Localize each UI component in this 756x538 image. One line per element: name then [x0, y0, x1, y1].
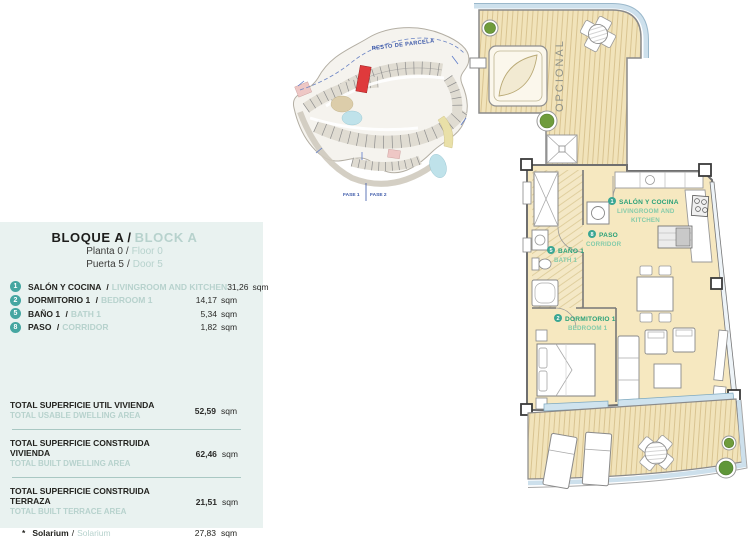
plant-icon — [722, 436, 736, 450]
room-list: 1 SALÓN Y COCINA /LIVINGROOM AND KITCHEN… — [10, 280, 243, 334]
room-area: 1,82 — [183, 322, 217, 332]
left-wall-window — [523, 238, 531, 252]
washing-machine-icon — [587, 202, 609, 224]
room-row: 5 BAÑO 1 /BATH 1 5,34 sqm — [10, 307, 243, 321]
room-row: 2 DORMITORIO 1 /BEDROOM 1 14,17 sqm — [10, 294, 243, 308]
bed-icon — [537, 344, 595, 396]
site-plan: RESTO DE PARCELA FASE 1 FASE 2 — [293, 28, 468, 201]
sofa-icon — [618, 336, 639, 402]
room-number-badge: 2 — [10, 295, 21, 306]
svg-text:KITCHEN: KITCHEN — [631, 217, 660, 224]
total-unit: sqm — [221, 406, 243, 416]
svg-text:2: 2 — [556, 316, 559, 322]
room-number-badge: 5 — [10, 308, 21, 319]
solarium-unit: sqm — [221, 528, 243, 538]
svg-text:8: 8 — [590, 232, 593, 238]
toilet-icon — [532, 258, 551, 270]
block-title: BLOQUE A/BLOCK A — [10, 230, 239, 245]
room-row: 1 SALÓN Y COCINA /LIVINGROOM AND KITCHEN… — [10, 280, 243, 294]
left-wall-window — [523, 182, 531, 204]
sun-lounger-icon — [582, 432, 612, 486]
door-line: Puerta 5/Door 5 — [10, 258, 239, 271]
room-area-unit: sqm — [221, 322, 243, 332]
total-value: 62,46 — [184, 449, 217, 459]
room-area-unit: sqm — [221, 309, 243, 319]
room-area: 31,26 — [227, 282, 248, 292]
total-built-area: TOTAL SUPERFICIE CONSTRUIDA VIVIENDA TOT… — [10, 430, 243, 477]
total-value: 52,59 — [182, 406, 216, 416]
fase1-label: FASE 1 — [343, 192, 360, 198]
floor-plan: OPCIONAL — [470, 4, 747, 489]
solarium-row: * Solarium / Solarium 27,83 sqm — [10, 525, 243, 538]
totals-section: TOTAL SUPERFICIE UTIL VIVIENDA TOTAL USA… — [10, 392, 243, 538]
svg-text:5: 5 — [549, 248, 552, 254]
room-number-badge: 8 — [10, 322, 21, 333]
svg-text:PASO: PASO — [599, 232, 618, 239]
block-title-es: BLOQUE A — [51, 230, 124, 245]
coffee-table — [654, 364, 681, 388]
total-usable-area: TOTAL SUPERFICIE UTIL VIVIENDA TOTAL USA… — [10, 392, 243, 429]
fase2-label: FASE 2 — [370, 192, 387, 198]
total-value: 21,51 — [184, 497, 217, 507]
jacuzzi — [489, 46, 547, 106]
floorplan-sheet: { "sep": "/", "colors": { "panel_bg": "#… — [0, 0, 756, 528]
opcional-label: OPCIONAL — [554, 39, 566, 112]
floor-line: Planta 0/Floor 0 — [10, 245, 239, 258]
room-area-unit: sqm — [252, 282, 268, 292]
unit-info-panel: BLOQUE A/BLOCK A Planta 0/Floor 0 Puerta… — [0, 222, 263, 528]
svg-text:LIVINGROOM AND: LIVINGROOM AND — [617, 208, 675, 215]
room-area: 5,34 — [183, 309, 217, 319]
room-area: 14,17 — [183, 295, 217, 305]
nightstand-icon — [536, 330, 547, 341]
plant-icon — [716, 458, 736, 478]
svg-text:SALÓN Y COCINA: SALÓN Y COCINA — [619, 197, 679, 206]
room-area-unit: sqm — [221, 295, 243, 305]
svg-text:BEDROOM 1: BEDROOM 1 — [568, 325, 608, 332]
total-terrace-area: TOTAL SUPERFICIE CONSTRUIDA TERRAZA TOTA… — [10, 478, 243, 525]
solarium-value: 27,83 — [182, 528, 216, 538]
plant-icon — [482, 20, 498, 36]
svg-text:1: 1 — [610, 199, 613, 205]
plant-icon — [537, 111, 557, 131]
cooktop-icon — [691, 195, 708, 216]
room-row: 8 PASO /CORRIDOR 1,82 sqm — [10, 321, 243, 335]
parasol-icon — [547, 135, 577, 163]
bath-sink-icon — [532, 230, 548, 250]
bathtub-icon — [532, 280, 558, 306]
total-unit: sqm — [222, 449, 243, 459]
svg-text:BAÑO 1: BAÑO 1 — [558, 246, 584, 255]
room-number-badge: 1 — [10, 281, 21, 292]
kitchen-island — [658, 226, 692, 248]
armchair-icon — [673, 328, 695, 352]
svg-text:CORRIDOR: CORRIDOR — [586, 241, 622, 248]
unit-header: BLOQUE A/BLOCK A Planta 0/Floor 0 Puerta… — [10, 230, 243, 271]
armchair-icon — [645, 330, 667, 354]
block-title-en: BLOCK A — [135, 230, 198, 245]
solarium-wall-stub — [470, 58, 486, 68]
svg-text:DORMITORIO 1: DORMITORIO 1 — [565, 316, 616, 323]
shower — [534, 172, 558, 226]
svg-text:BATH 1: BATH 1 — [554, 257, 577, 264]
total-unit: sqm — [222, 497, 243, 507]
